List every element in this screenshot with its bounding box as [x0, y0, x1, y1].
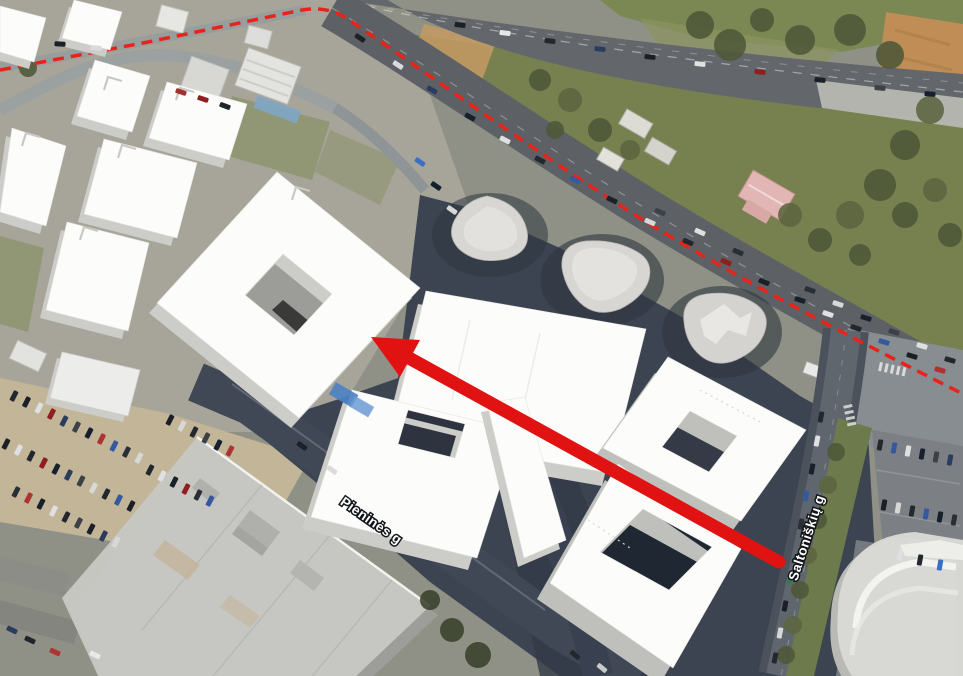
aerial-3d-scene: Pieninės g Saltoniškių g [0, 0, 963, 676]
map-canvas[interactable]: Pieninės g Saltoniškių g [0, 0, 963, 676]
